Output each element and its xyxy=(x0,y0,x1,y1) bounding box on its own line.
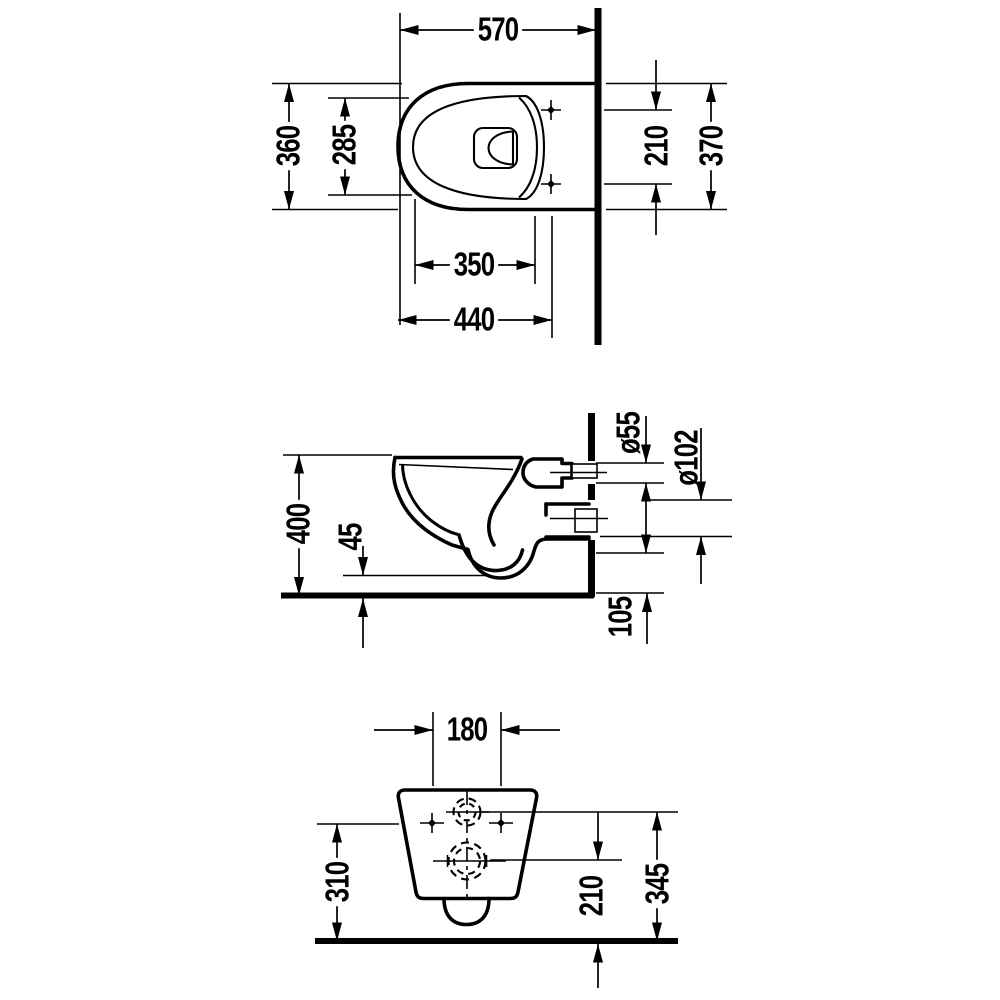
seat-ring-crescent xyxy=(519,98,537,198)
dim-label-clearance: 45 xyxy=(333,520,368,555)
dim-label-seat-length: 440 xyxy=(450,302,498,337)
outlet-connector-side xyxy=(546,504,608,537)
fixing-cross-right xyxy=(489,813,513,833)
seat-ring xyxy=(413,96,544,199)
fixing-cross-top xyxy=(541,100,561,120)
fixing-cross-bottom xyxy=(541,174,561,194)
technical-drawing: 570 360 285 350 440 210 370 400 45 ø55 ø… xyxy=(0,0,1000,1000)
bowl-outline-plan xyxy=(398,84,595,210)
dim-label-connection-spacing: 180 xyxy=(443,712,491,747)
dim-label-overall-depth: 570 xyxy=(474,12,522,47)
dim-label-flush-centre-height: 345 xyxy=(640,860,675,908)
fixing-cross-left xyxy=(420,813,444,833)
dim-label-side-height: 310 xyxy=(320,858,355,906)
dim-label-flush-pipe-diameter: ø55 xyxy=(611,408,646,458)
rear-view xyxy=(315,712,678,988)
dim-label-bowl-inner-length: 350 xyxy=(450,247,498,282)
dim-label-outlet-centre-height: 210 xyxy=(574,872,609,920)
plan-extension-lines xyxy=(272,13,727,338)
drawing-linework xyxy=(0,0,1000,1000)
outlet-bulge-rear xyxy=(444,899,489,925)
dim-label-back-depth: 370 xyxy=(694,122,729,170)
dim-label-outer-width: 360 xyxy=(271,122,306,170)
dim-label-height: 400 xyxy=(281,500,316,548)
flush-opening xyxy=(474,128,517,168)
flush-connector-side xyxy=(523,459,607,487)
dim-label-inner-width: 285 xyxy=(327,121,362,169)
dim-label-outlet-diameter: ø102 xyxy=(669,426,704,489)
plan-view xyxy=(272,8,727,345)
dim-label-fixing-spacing: 210 xyxy=(639,122,674,170)
dim-label-outlet-bottom-height: 105 xyxy=(603,593,638,641)
outlet-circles xyxy=(433,843,506,880)
